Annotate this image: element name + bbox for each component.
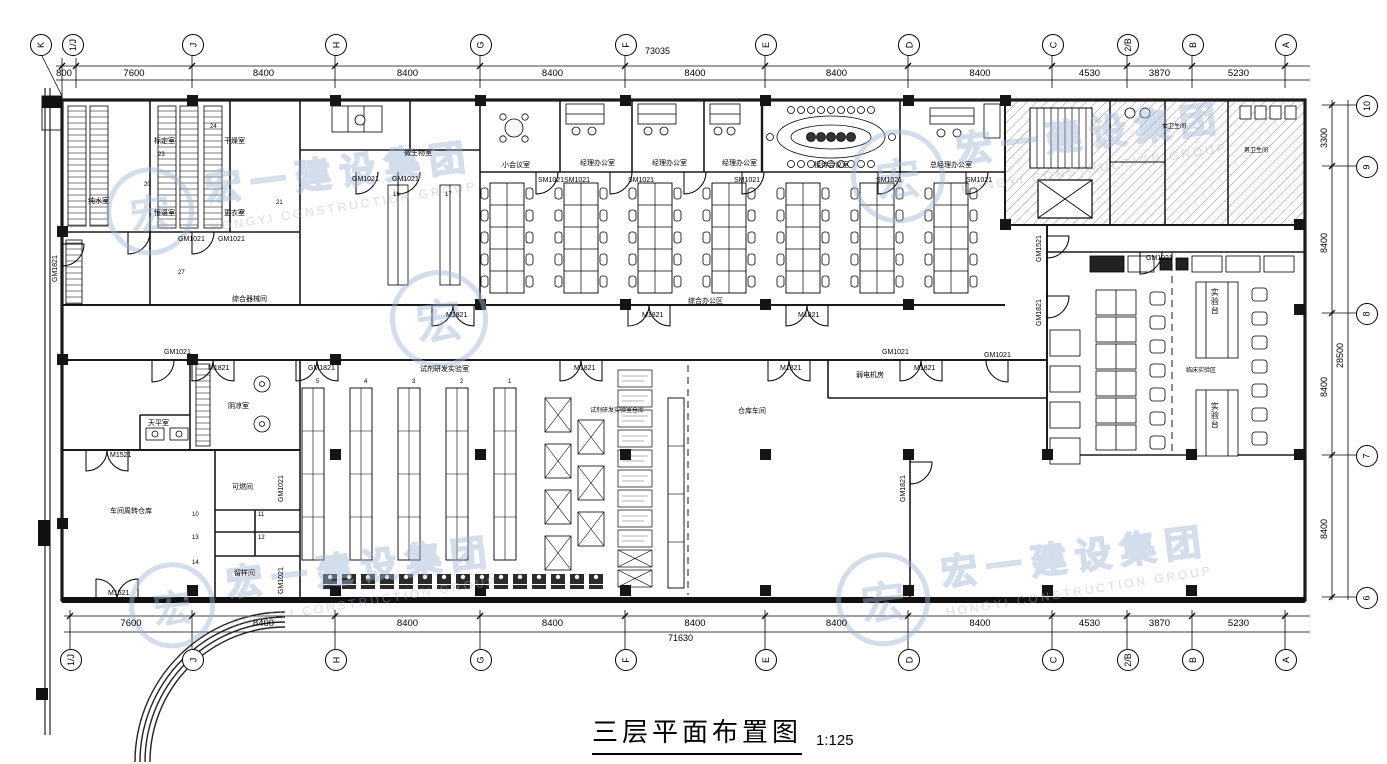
room-label-lab-bench-2: 实验台 bbox=[1210, 402, 1218, 429]
door-label: GM1021 bbox=[984, 352, 1011, 359]
door-label: SM1021 bbox=[966, 177, 992, 184]
axis-bubble-right-7: 7 bbox=[1356, 445, 1378, 467]
axis-bubble-top-C: C bbox=[1042, 34, 1064, 56]
bench-number: 16 bbox=[393, 192, 400, 198]
room-label-balance: 天平室 bbox=[148, 420, 169, 427]
room-label-manager-office-1: 经理办公室 bbox=[580, 160, 615, 167]
room-label-workshop-warehouse: 车间周转仓库 bbox=[110, 508, 152, 515]
dim-top-5: 8400 bbox=[625, 67, 765, 80]
axis-bubble-right-10: 10 bbox=[1356, 95, 1378, 117]
tag-number: 21 bbox=[276, 200, 283, 206]
room-label-reagent-lab: 试剂研发实验室 bbox=[420, 366, 469, 373]
dim-top-9: 3870 bbox=[1127, 67, 1192, 80]
dim-bot-3: 8400 bbox=[480, 617, 625, 630]
door-label: GM1821 bbox=[1036, 299, 1043, 326]
axis-bubble-top-1J: 1/J bbox=[62, 34, 84, 56]
axis-bubble-bot-D: D bbox=[898, 649, 920, 671]
dim-top-0: 800 bbox=[52, 67, 76, 80]
room-label-women-wc: 女卫生间 bbox=[1162, 124, 1186, 130]
door-label: GM1521 bbox=[1036, 235, 1043, 262]
tag-number: 27 bbox=[178, 270, 185, 276]
axis-bubble-bot-E: E bbox=[755, 649, 777, 671]
room-label-flammable: 可燃间 bbox=[232, 484, 253, 491]
dim-bot-1: 8400 bbox=[192, 617, 335, 630]
drawing-scale: 1:125 bbox=[816, 732, 854, 755]
equipment-column bbox=[618, 370, 652, 587]
room-label-warehouse-workshop: 仓库车间 bbox=[738, 408, 766, 415]
dim-bot-0: 7600 bbox=[70, 617, 192, 630]
room-label-manager-office-2: 经理办公室 bbox=[652, 160, 687, 167]
door-label: M1521 bbox=[110, 452, 131, 459]
room-label-small-meeting: 小会议室 bbox=[502, 162, 530, 169]
door-label: GM1021 bbox=[218, 236, 245, 243]
axis-bubble-right-8: 8 bbox=[1356, 303, 1378, 325]
door-label: GM1021 bbox=[178, 236, 205, 243]
rack-number: 1 bbox=[508, 379, 511, 385]
door-label: GM1021 bbox=[882, 349, 909, 356]
axis-bubble-bot-2B: 2/B bbox=[1117, 649, 1139, 671]
axis-bubble-bot-1J: 1/J bbox=[60, 649, 82, 671]
room-label-lab-bench-1: 实验台 bbox=[1210, 288, 1218, 315]
storage-racks-topleft bbox=[66, 106, 460, 304]
bench-number: 17 bbox=[445, 192, 452, 198]
cell-number: 10 bbox=[192, 512, 199, 518]
door-label: GM1821 bbox=[308, 365, 335, 372]
dim-bot-7: 4530 bbox=[1052, 617, 1127, 630]
room-label-instrument: 综合器械间 bbox=[232, 296, 267, 303]
door-label: SM1021 bbox=[876, 177, 902, 184]
dim-bot-6: 8400 bbox=[908, 617, 1052, 630]
door-label: M1521 bbox=[108, 590, 129, 597]
dim-top-8: 4530 bbox=[1052, 67, 1127, 80]
door-label: GM1021 bbox=[392, 176, 419, 183]
axis-bubble-top-A: A bbox=[1275, 34, 1297, 56]
axis-bubble-top-F: F bbox=[615, 34, 637, 56]
door-label: M1821 bbox=[642, 312, 663, 319]
axis-bubble-bot-A: A bbox=[1275, 649, 1297, 671]
door-label: SM1021 bbox=[628, 177, 654, 184]
room-label-gm-office: 总经理办公室 bbox=[930, 162, 972, 169]
room-label-microbiology: 微生物室 bbox=[404, 150, 432, 157]
dim-right-2: 8400 bbox=[1320, 377, 1329, 397]
dim-bot-2: 8400 bbox=[335, 617, 480, 630]
tag-number: 20 bbox=[144, 182, 151, 188]
door-label: GM1821 bbox=[52, 255, 59, 282]
dim-right-3: 8400 bbox=[1320, 519, 1329, 539]
door-label: GM1821 bbox=[900, 475, 907, 502]
axis-bubble-top-G: G bbox=[470, 34, 492, 56]
dim-bot-overall: 71630 bbox=[668, 634, 693, 643]
tag-number: 22 bbox=[238, 210, 245, 216]
dim-top-1: 7600 bbox=[76, 67, 192, 80]
axis-bubble-bot-J: J bbox=[182, 649, 204, 671]
axis-bubble-right-6: 6 bbox=[1356, 587, 1378, 609]
axis-bubble-top-J: J bbox=[182, 34, 204, 56]
tag-number: 23 bbox=[158, 152, 165, 158]
door-label: SM1021 bbox=[734, 177, 760, 184]
axis-bubble-top-2B: 2/B bbox=[1117, 34, 1139, 56]
room-label-calibration: 标定室 bbox=[154, 138, 175, 145]
room-label-manager-office-3: 经理办公室 bbox=[722, 160, 757, 167]
office-furniture bbox=[500, 104, 1000, 168]
axis-bubble-bot-G: G bbox=[470, 649, 492, 671]
cell-number: 14 bbox=[192, 560, 199, 566]
door-label: M1821 bbox=[798, 312, 819, 319]
axis-bubble-bot-F: F bbox=[615, 649, 637, 671]
door-label: GM1021 bbox=[1146, 255, 1173, 262]
room-label-reception-meeting: 接待会议室 bbox=[814, 162, 849, 169]
room-label-elv-room: 弱电机房 bbox=[856, 372, 884, 379]
tag-number: 24 bbox=[210, 124, 217, 130]
door-label: GM1021 bbox=[278, 475, 285, 502]
axis-bubble-top-D: D bbox=[898, 34, 920, 56]
dim-bot-8: 3870 bbox=[1127, 617, 1192, 630]
axis-bubble-top-K: K bbox=[30, 34, 52, 56]
door-label: M1821 bbox=[574, 365, 595, 372]
plan-linework bbox=[0, 0, 1387, 764]
door-label: M1821 bbox=[914, 365, 935, 372]
balance-room-tables bbox=[146, 364, 270, 446]
rack-number: 4 bbox=[364, 379, 367, 385]
room-label-reagent-store: 试剂研发实验室仓库 bbox=[590, 408, 644, 414]
room-label-clinical-area: 临床实验区 bbox=[1186, 368, 1216, 374]
room-label-constant-temp: 恒温室 bbox=[154, 210, 175, 217]
rack-number: 3 bbox=[412, 379, 415, 385]
dim-top-2: 8400 bbox=[192, 67, 335, 80]
cell-number: 11 bbox=[258, 512, 264, 518]
door-label: GM1021 bbox=[164, 349, 191, 356]
door-label: GM1021 bbox=[278, 567, 285, 594]
room-label-cool-room: 阴凉室 bbox=[228, 403, 249, 410]
floorplan-sheet: 宏 宏一建设集团 HONGYI CONSTRUCTION GROUP 宏 宏一建… bbox=[0, 0, 1387, 764]
dim-right-overall: 28500 bbox=[1336, 343, 1345, 368]
dim-top-3: 8400 bbox=[335, 67, 480, 80]
door-label: SM1021 bbox=[564, 177, 590, 184]
cell-number: 13 bbox=[192, 535, 199, 541]
room-label-pure-water: 纯水室 bbox=[88, 198, 109, 205]
dim-top-overall: 73035 bbox=[645, 47, 670, 56]
door-label: M1821 bbox=[208, 365, 229, 372]
axis-bubble-top-B: B bbox=[1182, 34, 1204, 56]
open-office-desks bbox=[481, 183, 977, 293]
room-label-drying: 干燥室 bbox=[224, 138, 245, 145]
dim-top-10: 5230 bbox=[1192, 67, 1285, 80]
room-label-sample-keep: 留样间 bbox=[234, 570, 255, 577]
rack-number: 5 bbox=[316, 379, 319, 385]
door-label: M1821 bbox=[446, 312, 467, 319]
service-core bbox=[1005, 100, 1305, 225]
dim-right-1: 8400 bbox=[1320, 233, 1329, 253]
dim-bot-4: 8400 bbox=[625, 617, 765, 630]
dim-right-0: 3300 bbox=[1320, 128, 1329, 148]
axis-bubble-right-9: 9 bbox=[1356, 156, 1378, 178]
rack-number: 2 bbox=[460, 379, 463, 385]
axis-bubble-bot-C: C bbox=[1042, 649, 1064, 671]
door-label: M1821 bbox=[780, 365, 801, 372]
dim-top-6: 8400 bbox=[765, 67, 908, 80]
axis-bubble-top-H: H bbox=[325, 34, 347, 56]
dim-top-4: 8400 bbox=[480, 67, 625, 80]
cell-number: 12 bbox=[258, 535, 265, 541]
axis-bubble-top-E: E bbox=[755, 34, 777, 56]
drawing-title: 三层平面布置图 bbox=[592, 712, 802, 755]
drawing-title-block: 三层平面布置图 1:125 bbox=[592, 712, 854, 755]
room-label-men-wc: 男卫生间 bbox=[1244, 148, 1268, 154]
dim-bot-9: 5230 bbox=[1192, 617, 1285, 630]
dim-top-7: 8400 bbox=[908, 67, 1052, 80]
axis-bubble-bot-H: H bbox=[325, 649, 347, 671]
door-label: SM1021 bbox=[538, 177, 564, 184]
room-label-open-office: 综合办公区 bbox=[688, 298, 723, 305]
axis-bubble-bot-B: B bbox=[1182, 649, 1204, 671]
door-label: GM1021 bbox=[352, 176, 379, 183]
dim-bot-5: 8400 bbox=[765, 617, 908, 630]
